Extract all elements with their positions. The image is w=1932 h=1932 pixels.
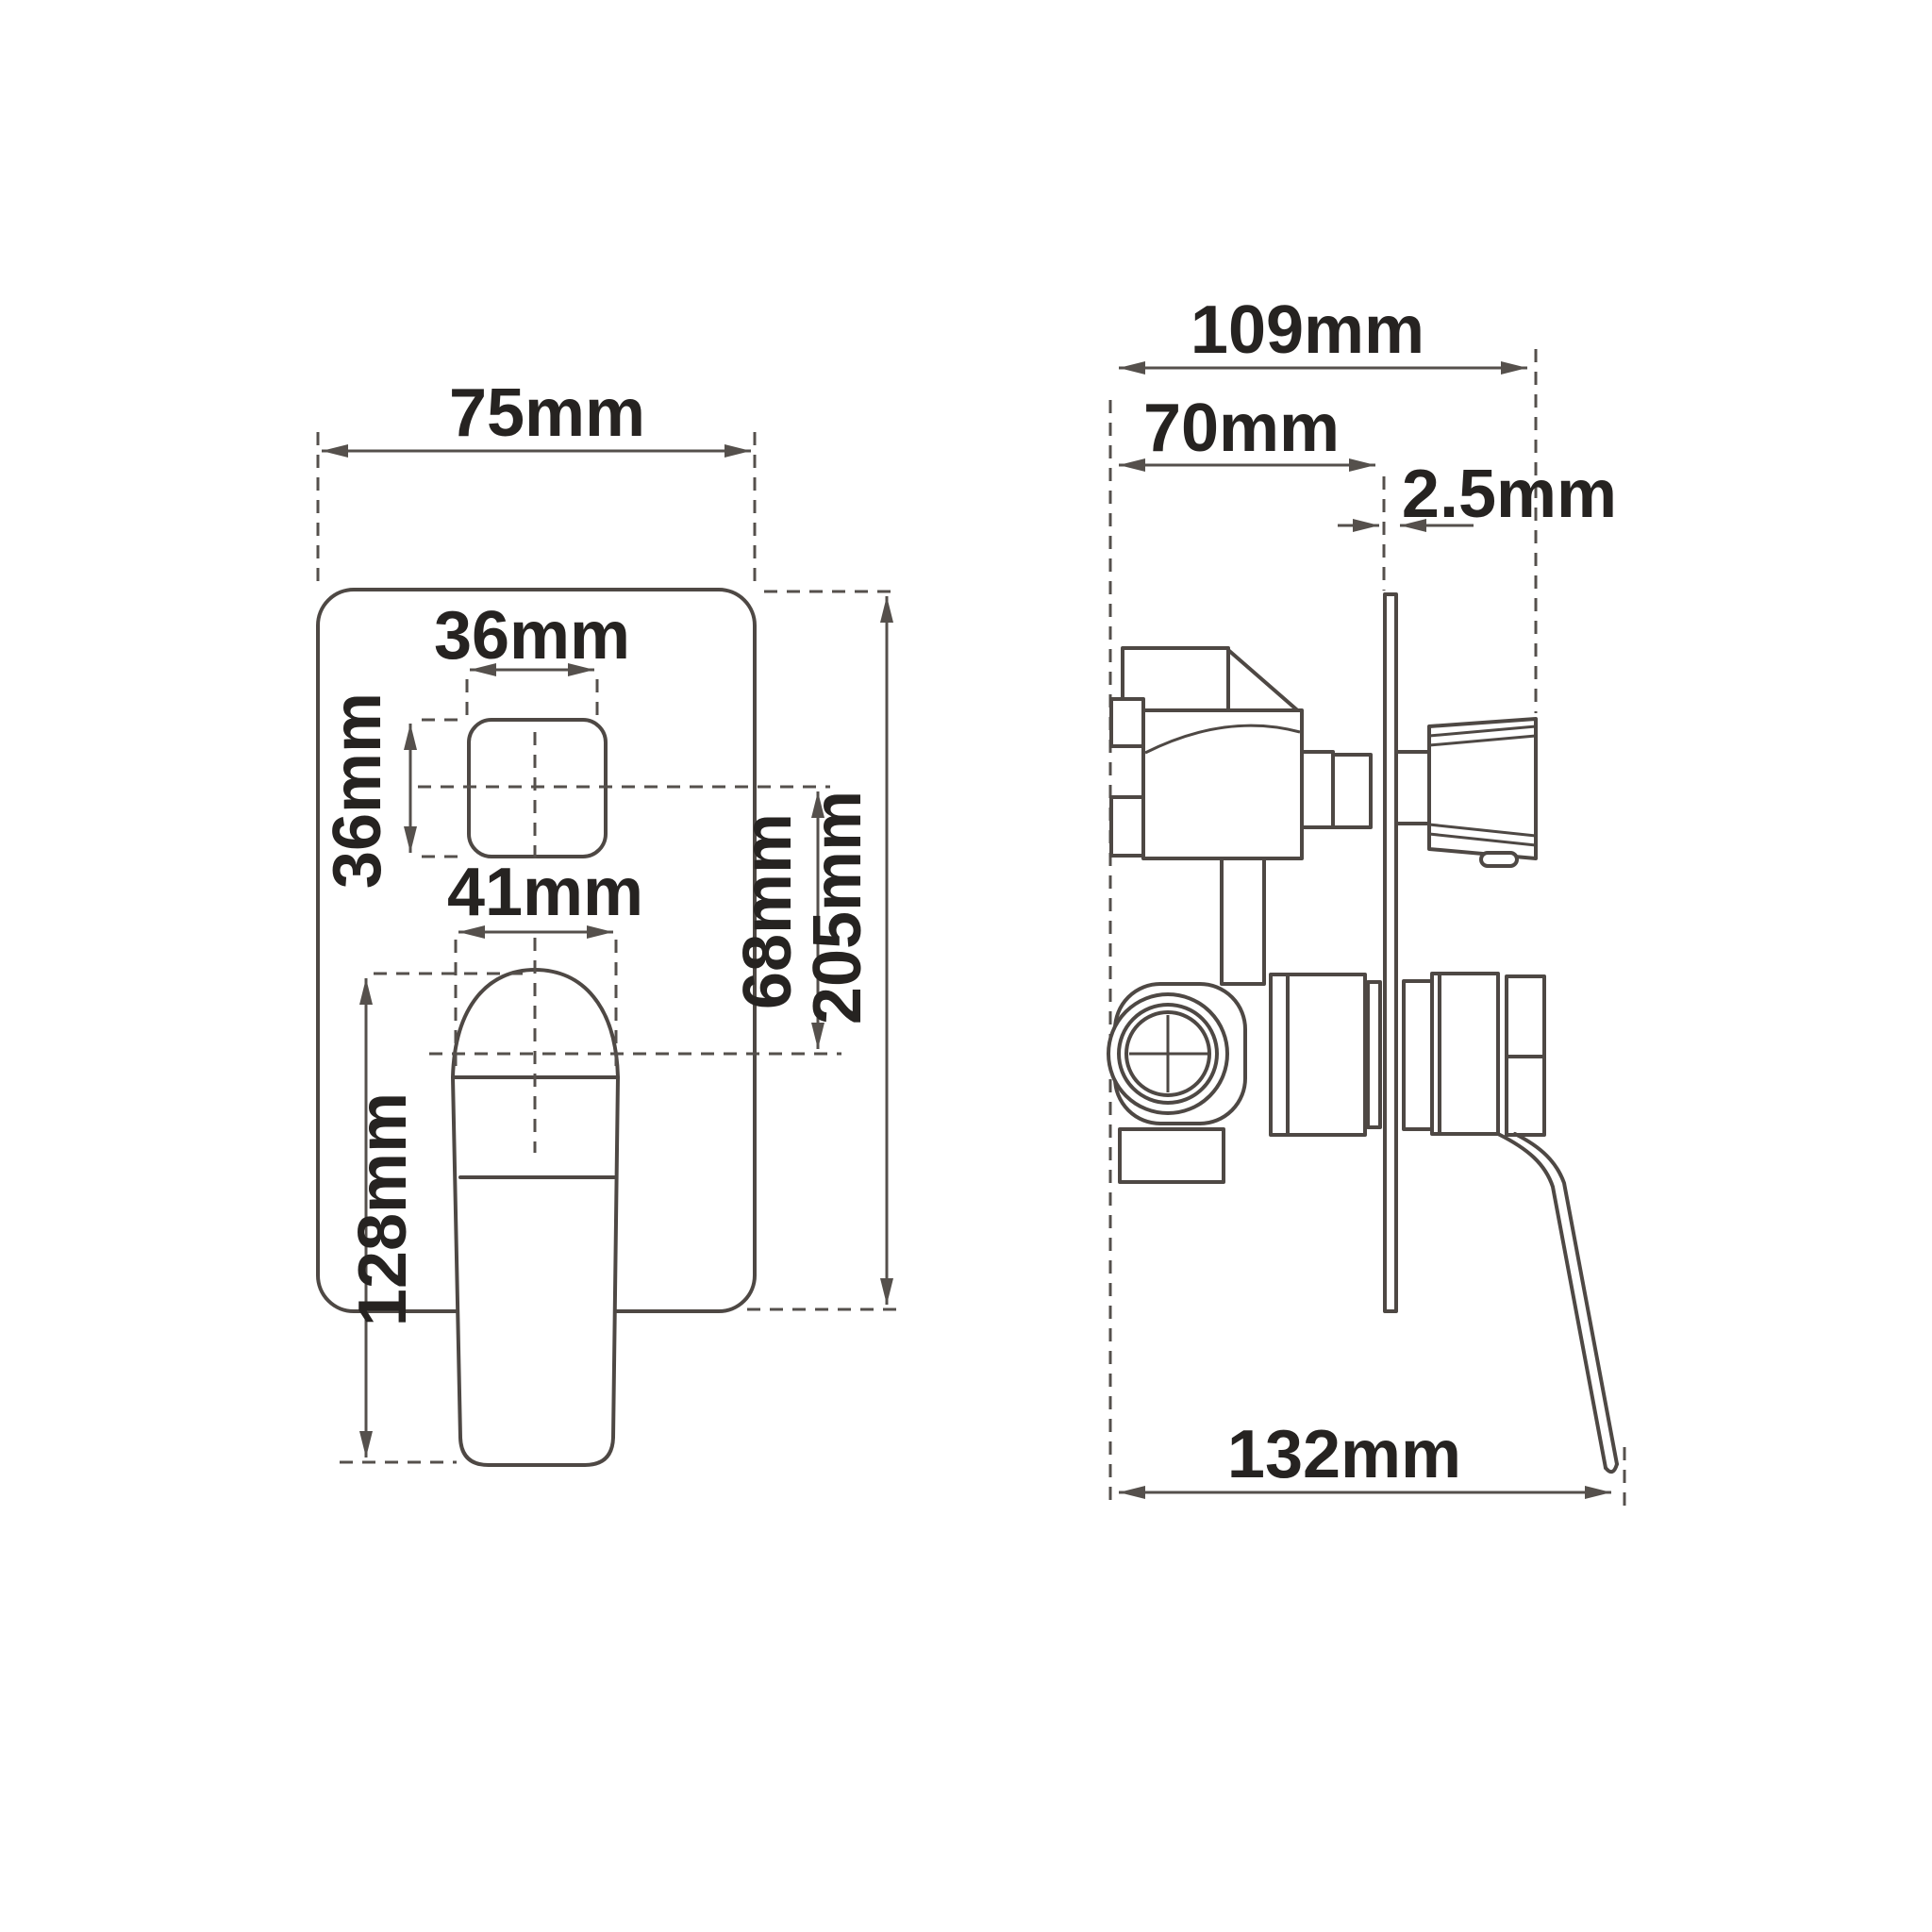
body-chamfer-line xyxy=(1228,650,1302,714)
hub-body xyxy=(1432,974,1498,1134)
lever-tip xyxy=(1606,1464,1617,1472)
dim-label-132mm: 132mm xyxy=(1227,1417,1461,1492)
knob-indicator-nub xyxy=(1481,853,1517,866)
dim-label-75mm: 75mm xyxy=(449,375,645,451)
trim-plate-side xyxy=(1385,594,1396,1311)
mixer-technical-drawing: 75mm 36mm 36mm 41mm 128mm xyxy=(0,0,1932,1932)
hub-ring xyxy=(1404,981,1432,1129)
dim-label-205mm: 205mm xyxy=(800,791,875,1024)
dim-plate-width: 75mm xyxy=(318,375,755,585)
wall-flange xyxy=(1111,797,1143,856)
diverter-valve-body-side xyxy=(1111,648,1371,858)
dim-label-2p5mm: 2.5mm xyxy=(1402,457,1617,532)
body-block xyxy=(1143,710,1302,858)
diverter-knob-side xyxy=(1396,719,1536,866)
lower-housing-block xyxy=(1120,1129,1224,1182)
mixer-valve-body-side xyxy=(1108,858,1380,1182)
dim-label-41mm: 41mm xyxy=(447,855,643,930)
dim-valve-body-depth: 70mm xyxy=(1119,391,1384,591)
dim-plate-thickness: 2.5mm xyxy=(1338,457,1617,532)
drawing-canvas: 75mm 36mm 36mm 41mm 128mm xyxy=(0,0,1932,1932)
valve-flange xyxy=(1333,755,1371,827)
connector-pipe xyxy=(1222,858,1264,984)
lever-handle-front xyxy=(453,970,618,1465)
lever-handle-side xyxy=(1404,974,1617,1472)
cartridge-body xyxy=(1271,974,1365,1135)
dim-label-68mm: 68mm xyxy=(730,813,806,1009)
dim-label-70mm: 70mm xyxy=(1143,391,1340,466)
dim-label-128mm: 128mm xyxy=(345,1092,421,1326)
wall-flange xyxy=(1111,699,1143,746)
lever-arm-edge xyxy=(1515,1134,1617,1464)
valve-neck xyxy=(1302,752,1333,827)
cartridge-collar xyxy=(1368,982,1380,1127)
dim-label-109mm: 109mm xyxy=(1191,292,1424,368)
dim-label-36mm-width: 36mm xyxy=(434,598,630,674)
lever-arm-edge xyxy=(1498,1134,1606,1468)
side-view: 109mm 70mm 2.5mm 132mm xyxy=(1108,292,1624,1507)
dim-label-36mm-height: 36mm xyxy=(320,692,395,889)
front-view: 75mm 36mm 36mm 41mm 128mm xyxy=(318,375,898,1465)
dim-total-projection: 132mm xyxy=(1119,1417,1624,1507)
